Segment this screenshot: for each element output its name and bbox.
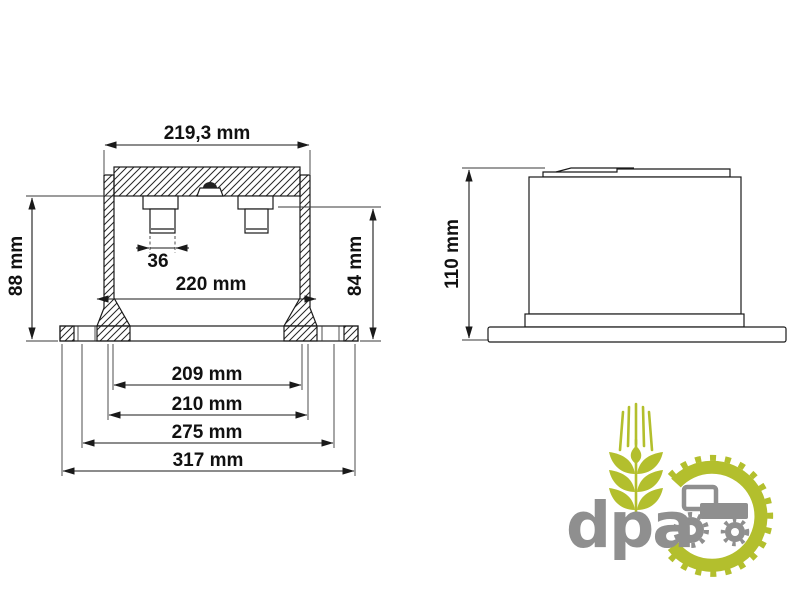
dim-label-outer-width: 219,3 mm bbox=[164, 123, 251, 144]
dimension-spigot-width: 36 bbox=[136, 236, 189, 272]
dpa-wordmark: dpa bbox=[566, 489, 693, 562]
left-bushing bbox=[143, 196, 178, 233]
top-lip bbox=[543, 169, 730, 177]
side-view: 110 mm bbox=[442, 168, 786, 342]
dim-label-bottom-width-3: 275 mm bbox=[172, 422, 243, 443]
left-wall-section bbox=[97, 175, 130, 326]
dim-label-spigot-width: 36 bbox=[147, 251, 168, 272]
body-step bbox=[525, 314, 744, 327]
dim-label-side-height: 110 mm bbox=[442, 219, 463, 289]
dimension-outer-width: 219,3 mm bbox=[104, 123, 310, 174]
body bbox=[529, 177, 741, 314]
flange-hatch-right bbox=[344, 326, 358, 341]
dim-label-bottom-width-1: 209 mm bbox=[172, 364, 243, 385]
dim-label-wall-outer-width: 220 mm bbox=[176, 274, 247, 295]
dim-label-height-left: 88 mm bbox=[6, 236, 27, 296]
dim-label-height-right: 84 mm bbox=[345, 236, 366, 296]
right-bushing bbox=[238, 196, 273, 233]
dimension-wall-outer-width: 220 mm bbox=[97, 274, 316, 299]
flange-hatch-wall-right bbox=[284, 326, 317, 341]
flange-hatch-left bbox=[60, 326, 74, 341]
flange-hatch-wall-left bbox=[97, 326, 130, 341]
right-wall-section bbox=[284, 175, 317, 326]
dimension-bottom-width-1: 209 mm bbox=[113, 344, 302, 390]
dim-label-bottom-width-2: 210 mm bbox=[172, 394, 243, 415]
center-boss bbox=[197, 188, 223, 196]
technical-drawing-canvas: 219,3 mm 220 mm 36 88 mm 84 mm bbox=[0, 0, 800, 600]
dimension-height-left: 88 mm bbox=[6, 196, 114, 341]
drawing-page: 219,3 mm 220 mm 36 88 mm 84 mm bbox=[0, 0, 800, 600]
front-view: 219,3 mm 220 mm 36 88 mm 84 mm bbox=[6, 123, 381, 476]
dpa-logo: dpa bbox=[566, 404, 770, 574]
dim-label-bottom-width-4: 317 mm bbox=[173, 450, 244, 471]
base-plate bbox=[488, 327, 786, 342]
